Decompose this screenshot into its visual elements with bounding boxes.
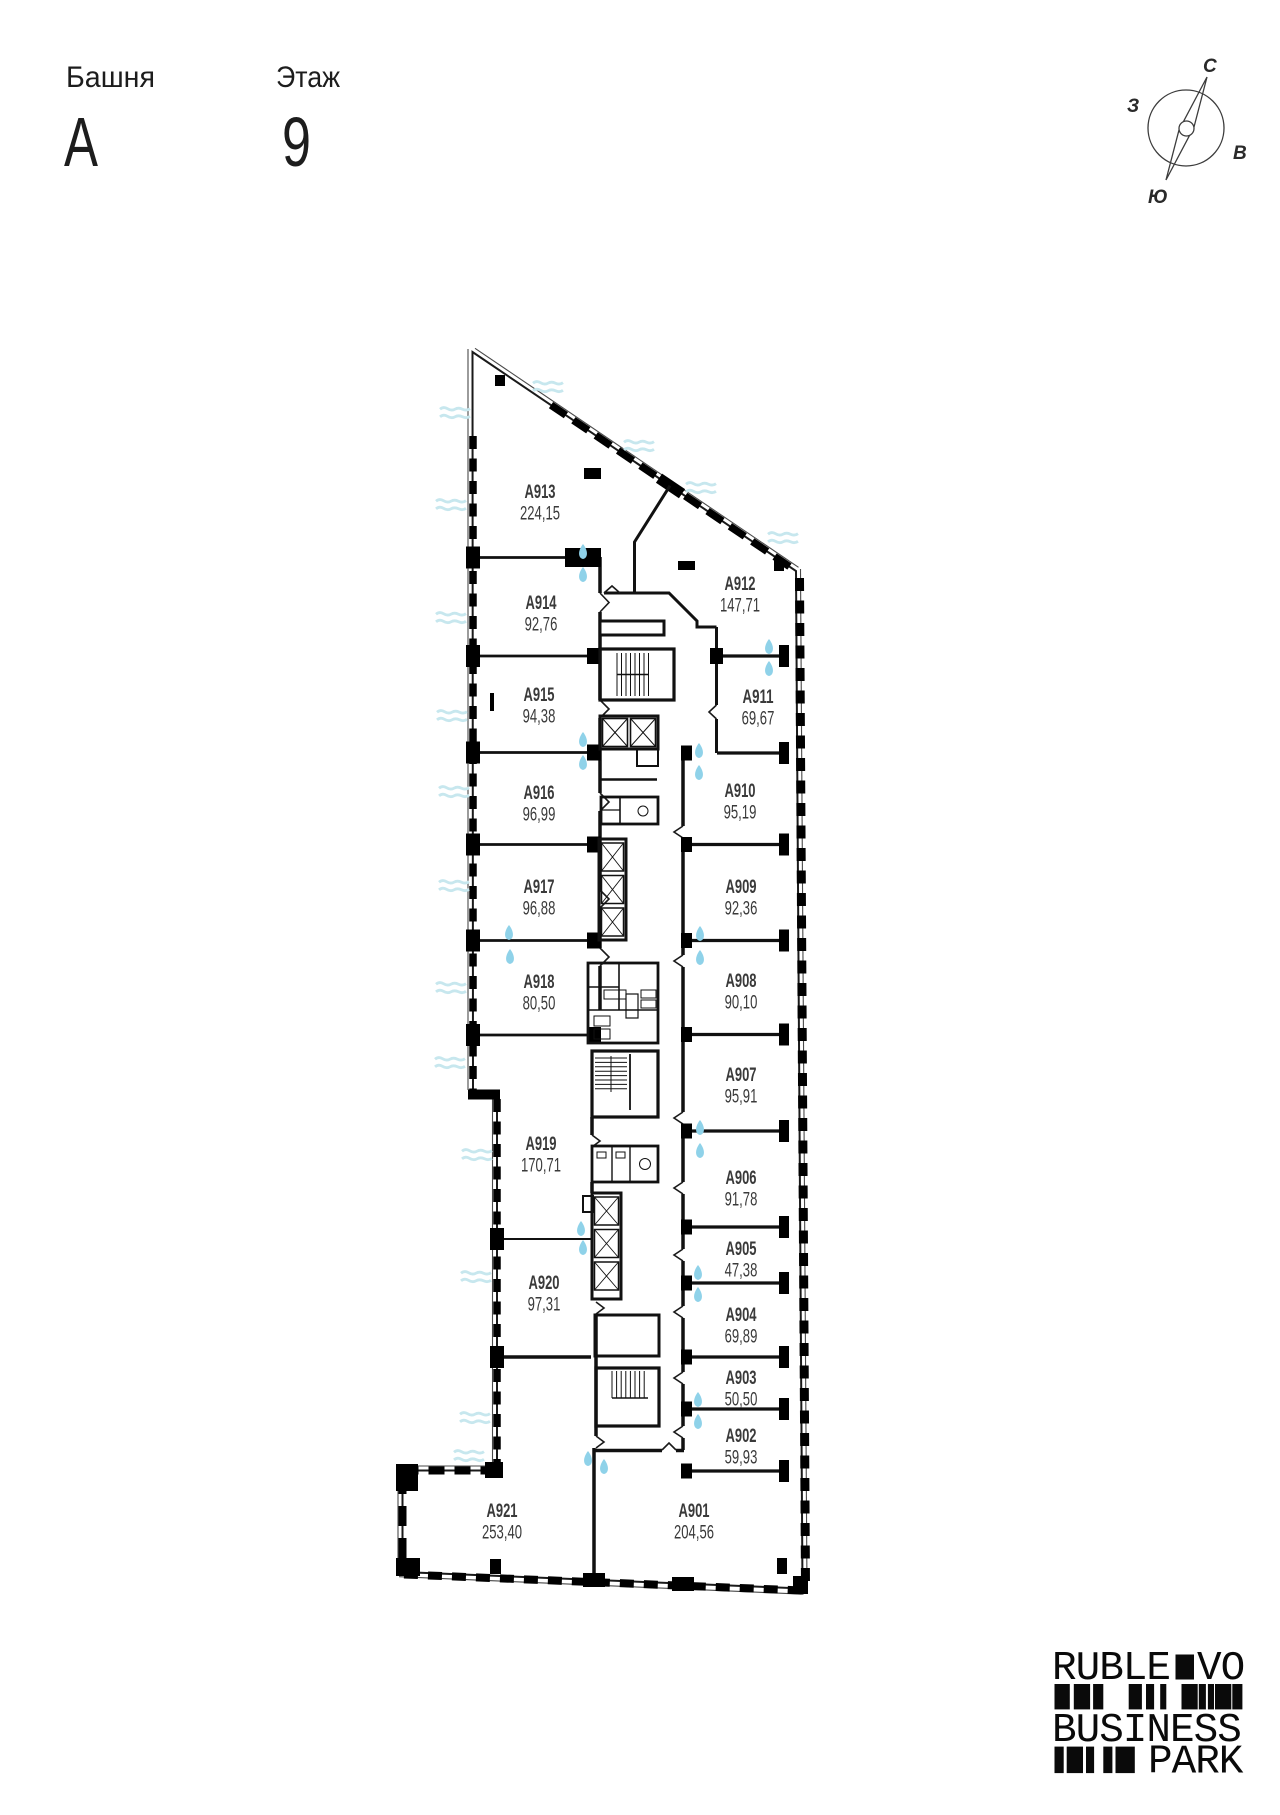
svg-text:95,91: 95,91 (725, 1086, 758, 1108)
svg-text:50,50: 50,50 (725, 1389, 758, 1411)
svg-text:А914: А914 (526, 592, 557, 614)
svg-text:А901: А901 (679, 1500, 710, 1522)
svg-text:90,10: 90,10 (725, 992, 758, 1014)
svg-text:9: 9 (282, 103, 311, 181)
svg-text:204,56: 204,56 (674, 1522, 714, 1544)
svg-text:А911: А911 (743, 686, 774, 708)
svg-text:Башня: Башня (66, 61, 155, 94)
svg-text:А920: А920 (529, 1272, 560, 1294)
svg-text:80,50: 80,50 (523, 993, 556, 1015)
svg-text:А907: А907 (726, 1064, 757, 1086)
svg-text:59,93: 59,93 (725, 1447, 758, 1469)
svg-text:96,88: 96,88 (523, 898, 556, 920)
svg-text:97,31: 97,31 (528, 1294, 561, 1316)
svg-text:PARK: PARK (1148, 1740, 1244, 1786)
svg-text:92,76: 92,76 (525, 614, 558, 636)
svg-text:А910: А910 (725, 780, 756, 802)
svg-text:А909: А909 (726, 876, 757, 898)
svg-text:А921: А921 (487, 1500, 518, 1522)
svg-text:В: В (1233, 143, 1247, 164)
svg-text:А904: А904 (726, 1304, 757, 1326)
svg-text:А915: А915 (524, 684, 555, 706)
svg-text:А903: А903 (726, 1367, 757, 1389)
svg-text:69,67: 69,67 (742, 708, 775, 730)
svg-text:С: С (1203, 56, 1217, 77)
svg-text:69,89: 69,89 (725, 1326, 758, 1348)
svg-text:А917: А917 (524, 876, 555, 898)
svg-text:147,71: 147,71 (720, 595, 760, 617)
svg-text:А906: А906 (726, 1167, 757, 1189)
svg-text:А916: А916 (524, 782, 555, 804)
svg-text:253,40: 253,40 (482, 1522, 522, 1544)
svg-text:Ю: Ю (1148, 187, 1168, 208)
svg-text:А905: А905 (726, 1238, 757, 1260)
svg-text:А913: А913 (525, 481, 556, 503)
svg-text:47,38: 47,38 (725, 1260, 758, 1282)
svg-text:А918: А918 (524, 971, 555, 993)
svg-text:170,71: 170,71 (521, 1155, 561, 1177)
svg-text:А902: А902 (726, 1425, 757, 1447)
svg-text:А: А (64, 103, 98, 181)
svg-text:96,99: 96,99 (523, 804, 556, 826)
svg-text:95,19: 95,19 (724, 802, 757, 824)
svg-text:А908: А908 (726, 970, 757, 992)
svg-text:Этаж: Этаж (276, 61, 340, 94)
svg-text:91,78: 91,78 (725, 1189, 758, 1211)
svg-text:А919: А919 (526, 1133, 557, 1155)
svg-text:92,36: 92,36 (725, 898, 758, 920)
svg-text:З: З (1127, 96, 1139, 117)
svg-text:94,38: 94,38 (523, 706, 556, 728)
svg-text:А912: А912 (725, 573, 756, 595)
svg-text:224,15: 224,15 (520, 503, 560, 525)
